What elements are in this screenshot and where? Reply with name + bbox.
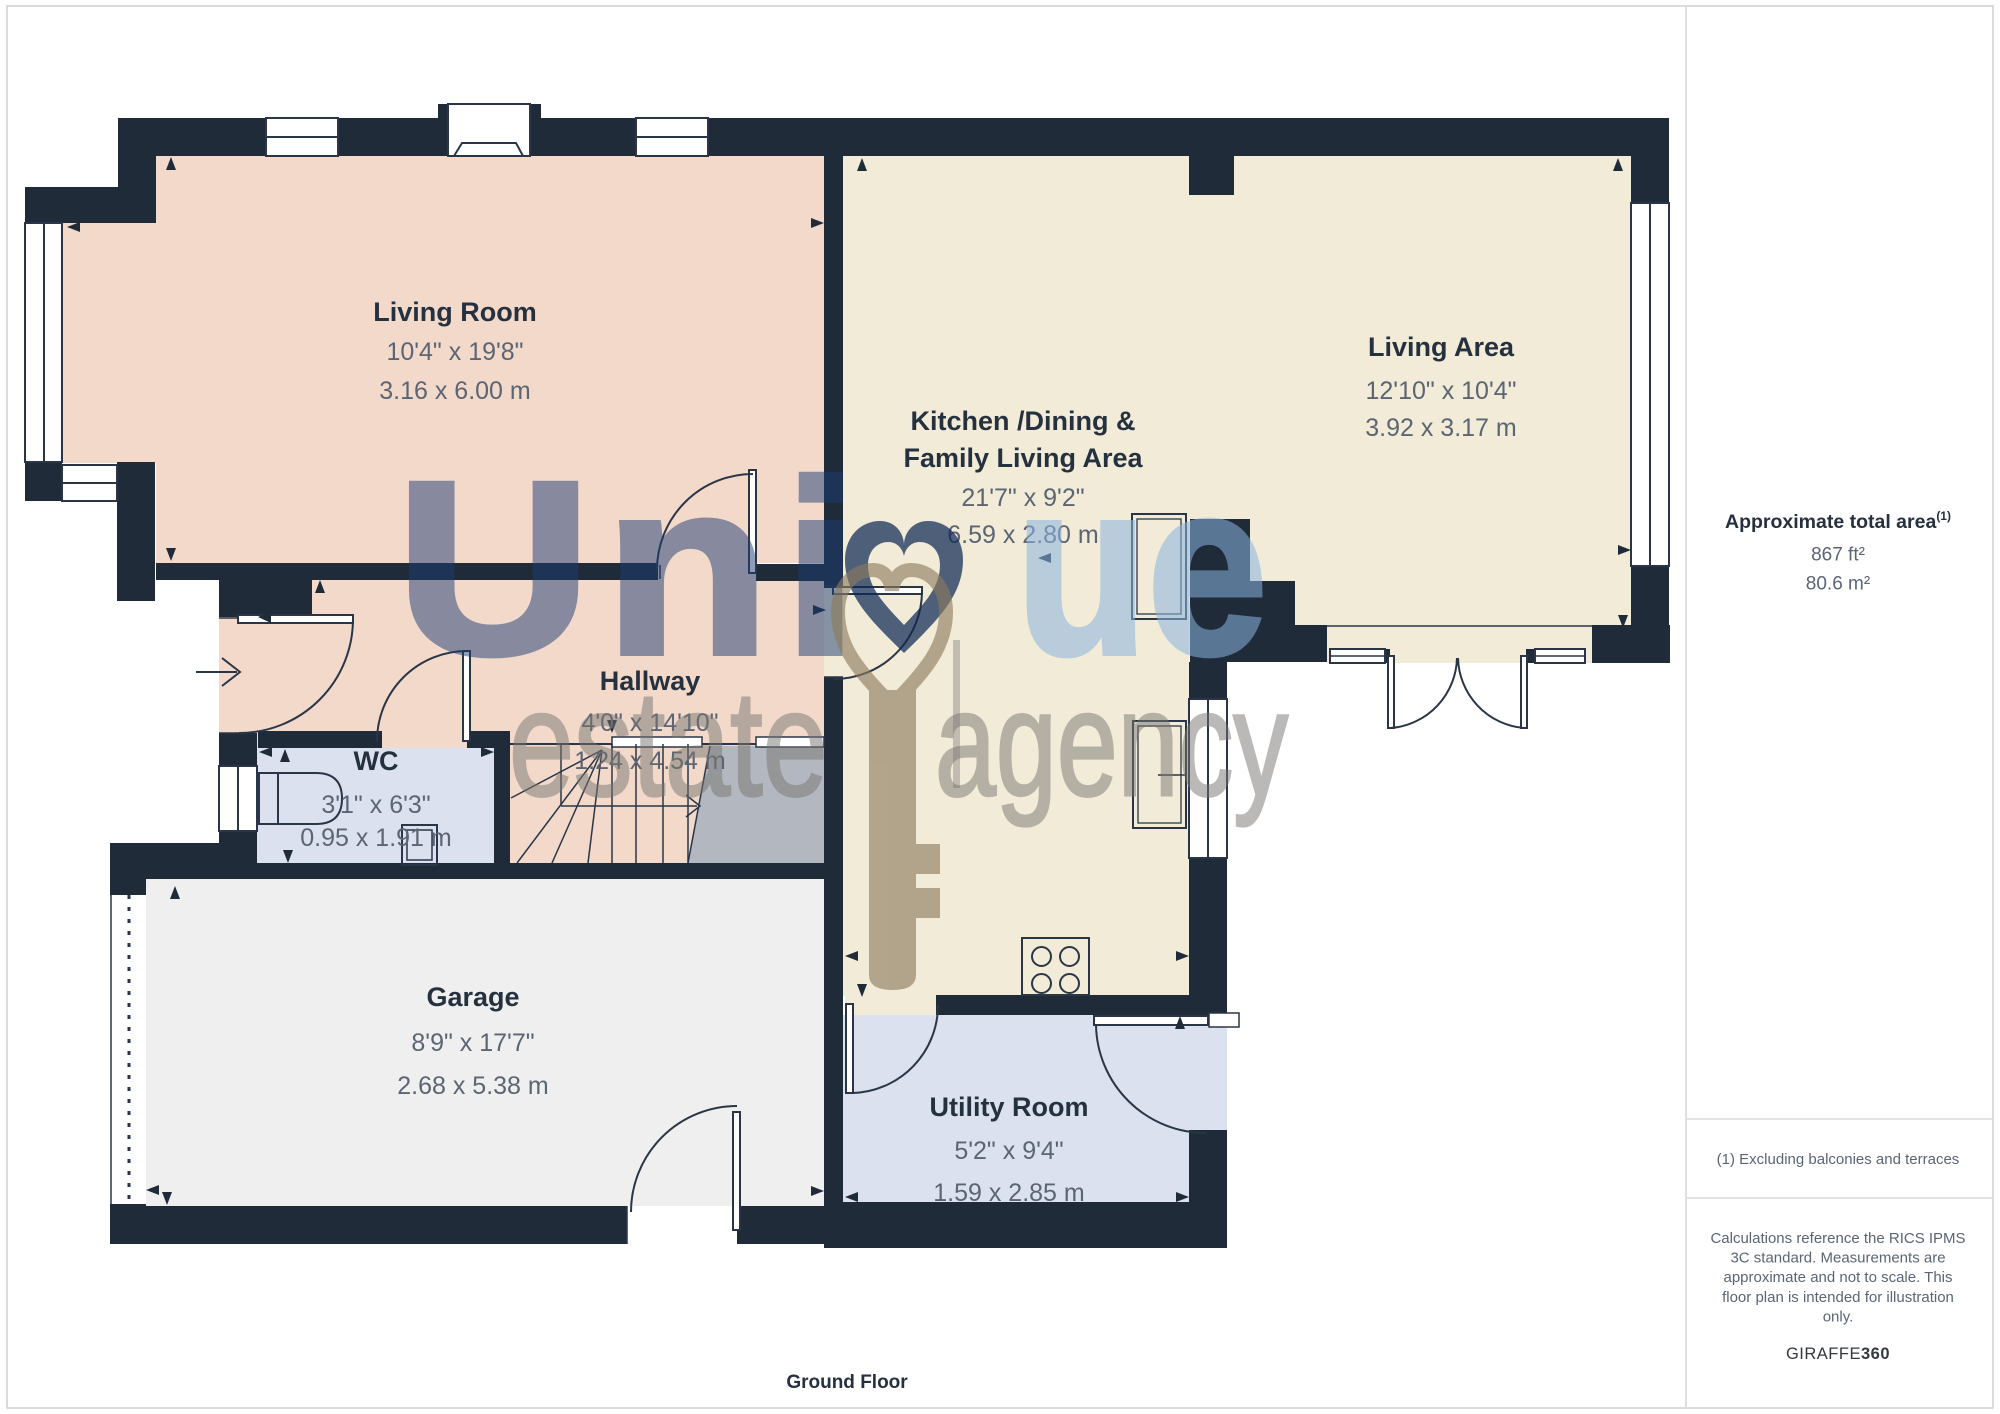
svg-text:10'4" x 19'8": 10'4" x 19'8" [386,338,523,366]
svg-text:3.16 x 6.00 m: 3.16 x 6.00 m [379,377,530,405]
svg-text:Living Area: Living Area [1368,332,1515,362]
svg-text:floor plan is intended for ill: floor plan is intended for illustration [1722,1289,1954,1306]
svg-text:12'10" x 10'4": 12'10" x 10'4" [1365,377,1516,405]
svg-text:1.59 x 2.85 m: 1.59 x 2.85 m [933,1179,1084,1207]
svg-text:3'1" x 6'3": 3'1" x 6'3" [321,791,430,819]
svg-text:Garage: Garage [426,982,519,1012]
svg-text:2.68 x 5.38 m: 2.68 x 5.38 m [397,1072,548,1100]
svg-text:0.95 x 1.91 m: 0.95 x 1.91 m [300,824,451,852]
svg-text:GIRAFFE360: GIRAFFE360 [1786,1345,1890,1363]
svg-text:(1) Excluding balconies and te: (1) Excluding balconies and terraces [1717,1151,1960,1168]
svg-text:3.92 x 3.17 m: 3.92 x 3.17 m [1365,414,1516,442]
svg-text:Approximate total area(1): Approximate total area(1) [1725,509,1951,533]
svg-text:5'2" x 9'4": 5'2" x 9'4" [954,1137,1063,1165]
svg-text:Calculations reference the RIC: Calculations reference the RICS IPMS [1710,1230,1965,1247]
svg-text:Ground Floor: Ground Floor [786,1372,908,1393]
svg-text:WC: WC [354,746,399,776]
svg-text:approximate and not to scale.: approximate and not to scale. This [1723,1269,1952,1286]
svg-text:3C standard. Measurements are: 3C standard. Measurements are [1730,1250,1945,1267]
svg-text:8'9" x 17'7": 8'9" x 17'7" [411,1029,534,1057]
svg-text:Utility Room: Utility Room [930,1092,1089,1122]
svg-text:only.: only. [1823,1308,1854,1325]
svg-text:agency: agency [935,659,1288,827]
svg-text:867 ft²: 867 ft² [1811,545,1865,566]
svg-text:Living Room: Living Room [373,297,537,327]
svg-text:80.6 m²: 80.6 m² [1806,574,1870,595]
svg-text:estate: estate [509,659,828,827]
